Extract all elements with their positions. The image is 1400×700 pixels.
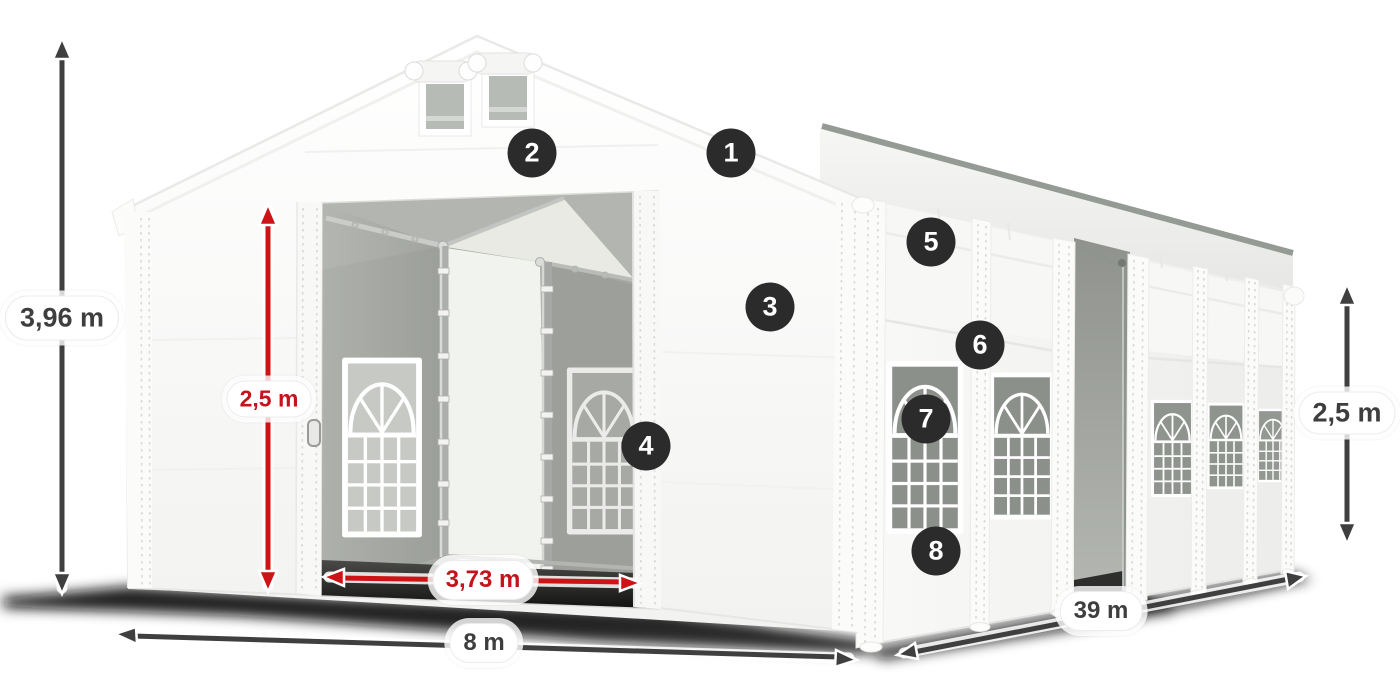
- side-window-3: [1151, 400, 1194, 497]
- eave-cap: [852, 197, 874, 213]
- right-door-panel: [633, 191, 661, 609]
- callout-badge-6: 6: [956, 321, 1005, 370]
- callout-badge-3: 3: [746, 283, 795, 332]
- callout-badge-2: 2: [508, 129, 557, 178]
- callout-badge-8: 8: [912, 527, 961, 576]
- dimension-label-total-height: 3,96 m: [5, 296, 119, 341]
- tent-dimensions-diagram: 3,96 m 2,5 m 3,73 m 8 m 39 m 2,5 m 1 2 3…: [0, 0, 1400, 700]
- left-corner-sleeve: [124, 212, 152, 588]
- entrance-opening: [320, 188, 662, 612]
- tent-illustration: [0, 0, 1400, 700]
- callout-badge-7: 7: [902, 395, 951, 444]
- dimension-label-side-height: 2,5 m: [1298, 392, 1395, 435]
- callout-badge-4: 4: [622, 422, 671, 471]
- door-handle: [308, 420, 320, 446]
- side-window-1: [887, 361, 964, 534]
- right-corner-sleeve: [832, 198, 862, 632]
- interior-window-1: [342, 358, 422, 538]
- dimension-label-length: 39 m: [1060, 591, 1143, 631]
- callout-badge-1: 1: [707, 129, 756, 178]
- side-window-2: [989, 373, 1054, 520]
- dimension-label-entrance-height: 2,5 m: [227, 381, 312, 418]
- far-eave-cap: [1284, 287, 1304, 305]
- dimension-label-entrance-width: 3,73 m: [433, 560, 534, 600]
- callout-badge-5: 5: [907, 218, 956, 267]
- side-door-opening: [1074, 238, 1130, 610]
- dimension-label-gable-width: 8 m: [449, 623, 518, 663]
- side-window-4: [1207, 403, 1245, 489]
